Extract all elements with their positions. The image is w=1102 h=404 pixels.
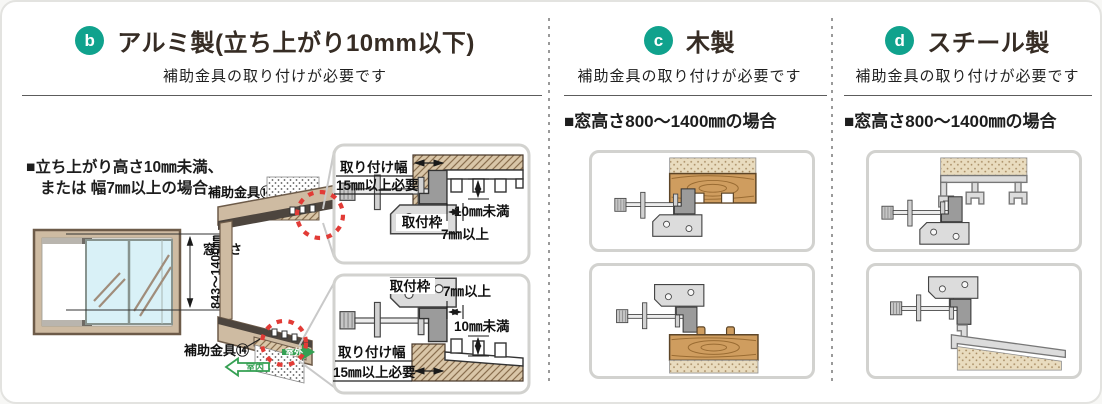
section-b-aluminum: b アルミ製(立ち上がり10mm以下) 補助金具の取り付けが必要です ■立ち上が… — [2, 2, 548, 402]
window-front-view — [34, 230, 180, 334]
mounting-width-req: 15㎜以上必要 — [336, 177, 419, 193]
part-label-top: 補助金具⑭ — [207, 185, 273, 200]
svg-text:室内: 室内 — [246, 362, 264, 373]
section-c-wood: c 木製 補助金具の取り付けが必要です ■窓高さ800～1400㎜の場合 — [548, 2, 831, 402]
clearance-label: 10㎜未満 — [454, 318, 510, 334]
section-d-badge: d — [885, 26, 914, 55]
installation-guide-card: b アルミ製(立ち上がり10mm以下) 補助金具の取り付けが必要です ■立ち上が… — [0, 0, 1102, 404]
section-b-title: アルミ製(立ち上がり10mm以下) — [117, 23, 475, 58]
depth-label: 7㎜以上 — [441, 227, 490, 242]
mounting-width-label: 取り付け幅 — [340, 159, 408, 175]
section-c-case-heading: ■窓高さ800～1400㎜の場合 — [564, 107, 831, 132]
auxiliary-bracket — [882, 197, 969, 244]
mounting-width-label: 取り付け幅 — [338, 344, 406, 360]
mount-frame-label: 取付枠 — [402, 214, 443, 230]
section-b-diagram: ■立ち上がり高さ10㎜未満、 または 幅7㎜以上の場合 — [22, 115, 547, 403]
section-divider-bc — [548, 18, 550, 386]
mounting-width-req: 15㎜以上必要 — [333, 364, 416, 380]
condition-note-line2: または 幅7㎜以上の場合 — [40, 178, 208, 197]
section-c-divider-line — [564, 95, 827, 96]
section-b-header: b アルミ製(立ち上がり10mm以下) — [2, 23, 548, 58]
section-b-badge: b — [75, 26, 104, 55]
glass-panes — [86, 240, 172, 324]
wood-sill-diagram — [592, 266, 812, 376]
section-b-subtitle: 補助金具の取り付けが必要です — [2, 65, 548, 86]
steel-head-diagram — [869, 153, 1079, 249]
condition-note-line1: ■立ち上がり高さ10㎜未満、 — [26, 157, 223, 176]
detail-box-top: 取付枠 取り付け幅 15㎜以上必要 10㎜未満 7㎜以上 — [334, 145, 529, 263]
auxiliary-bracket — [891, 277, 978, 325]
section-c-badge: c — [644, 26, 673, 55]
auxiliary-bracket — [615, 189, 702, 236]
wood-sill-detail-panel — [589, 263, 815, 379]
section-d-steel: d スチール製 補助金具の取り付けが必要です ■窓高さ800～1400㎜の場合 — [831, 2, 1102, 402]
steel-sill-diagram — [869, 266, 1079, 376]
section-d-divider-line — [844, 95, 1092, 96]
wood-head-diagram — [592, 153, 812, 249]
section-c-subtitle: 補助金具の取り付けが必要です — [548, 65, 831, 86]
steel-sill-section — [951, 325, 1065, 370]
section-c-header: c 木製 — [548, 23, 831, 58]
wood-head-detail-panel — [589, 150, 815, 252]
mount-frame-label: 取付枠 — [390, 278, 431, 294]
frame-perspective-section: 補助金具⑭ — [183, 177, 337, 383]
section-divider-cd — [831, 18, 833, 386]
section-d-header: d スチール製 — [831, 23, 1102, 58]
part-label-bottom: 補助金具⑭ — [183, 343, 249, 358]
section-d-title: スチール製 — [927, 23, 1050, 58]
section-b-divider-line — [22, 95, 542, 96]
steel-sill-detail-panel — [866, 263, 1082, 379]
wood-sill-section — [670, 327, 758, 373]
steel-head-detail-panel — [866, 150, 1082, 252]
detail-box-bottom: 取付枠 7㎜以上 10㎜未満 取り付け幅 15㎜以上必要 — [333, 275, 529, 393]
section-c-title: 木製 — [686, 23, 735, 58]
clearance-label: 10㎜未満 — [454, 203, 510, 219]
depth-label: 7㎜以上 — [443, 284, 492, 299]
section-d-subtitle: 補助金具の取り付けが必要です — [831, 65, 1102, 86]
auxiliary-bracket — [617, 285, 704, 333]
section-d-case-heading: ■窓高さ800～1400㎜の場合 — [844, 107, 1102, 132]
